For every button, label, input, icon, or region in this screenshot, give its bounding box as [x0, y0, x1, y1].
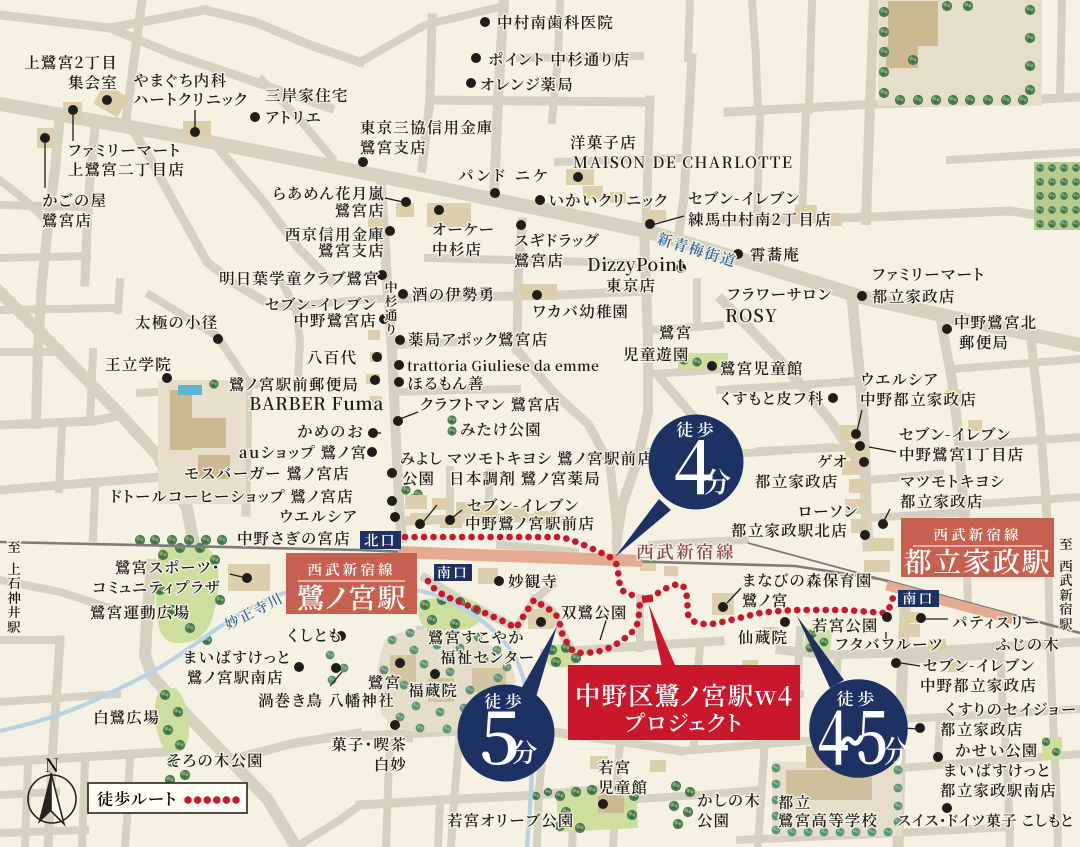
svg-text:鷺宮児童館: 鷺宮児童館: [720, 357, 804, 379]
svg-text:スギドラッグ: スギドラッグ: [514, 229, 599, 251]
svg-text:マツモトキヨシ: マツモトキヨシ: [900, 470, 1005, 492]
svg-text:鷺宮高等学校: 鷺宮高等学校: [778, 809, 878, 831]
svg-text:まなびの森保育園: まなびの森保育園: [742, 569, 873, 591]
svg-text:アトリエ: アトリエ: [265, 106, 322, 128]
svg-text:くすりのセイジョー: くすりのセイジョー: [945, 698, 1077, 720]
svg-text:フタバフルーツ: フタバフルーツ: [835, 633, 944, 655]
svg-text:都立家政駅南店: 都立家政駅南店: [940, 779, 1057, 801]
svg-text:南口: 南口: [437, 563, 469, 583]
svg-text:中野鷺ノ宮駅前店: 中野鷺ノ宮駅前店: [465, 512, 595, 534]
svg-text:至上石神井駅: 至上石神井駅: [6, 536, 21, 636]
svg-text:ウエルシア: ウエルシア: [279, 505, 357, 527]
svg-text:ポイント 中杉通り店: ポイント 中杉通り店: [488, 48, 630, 70]
svg-text:霄蕎庵: 霄蕎庵: [750, 243, 800, 265]
svg-text:公園: 公園: [402, 467, 435, 489]
svg-text:鷺宮店: 鷺宮店: [335, 199, 385, 221]
svg-text:都立家政店: 都立家政店: [755, 470, 839, 492]
svg-text:都立家政駅: 都立家政駅: [904, 541, 1052, 581]
svg-text:かめのお: かめのお: [297, 420, 364, 442]
svg-text:鷺宮すこやか: 鷺宮すこやか: [428, 626, 524, 648]
svg-text:ゲオ: ゲオ: [817, 450, 848, 472]
svg-text:都立家政駅北店: 都立家政駅北店: [731, 519, 848, 541]
svg-text:至西武新宿駅: 至西武新宿駅: [1058, 533, 1073, 633]
svg-text:北口: 北口: [364, 530, 397, 551]
svg-text:ワカバ幼稚園: ワカバ幼稚園: [532, 300, 629, 322]
svg-text:若宮オリーブ公園: 若宮オリーブ公園: [447, 809, 575, 831]
svg-text:MAISON DE CHARLOTTE: MAISON DE CHARLOTTE: [573, 151, 793, 173]
svg-text:都立家政店: 都立家政店: [872, 285, 956, 307]
svg-text:中杉通り: 中杉通り: [384, 277, 397, 338]
svg-text:鷺宮店: 鷺宮店: [42, 209, 92, 231]
svg-text:都立家政店: 都立家政店: [940, 718, 1024, 740]
svg-text:上鷺宮2丁目: 上鷺宮2丁目: [24, 51, 118, 73]
svg-text:酒の伊勢勇: 酒の伊勢勇: [412, 283, 495, 305]
svg-text:中野鷺宮1丁目店: 中野鷺宮1丁目店: [899, 443, 1024, 465]
svg-text:西武新宿線: 西武新宿線: [636, 539, 736, 564]
svg-text:鷺宮: 鷺宮: [368, 671, 401, 693]
svg-text:みよし: みよし: [400, 448, 443, 469]
svg-text:南口: 南口: [903, 589, 935, 609]
svg-text:公園: 公園: [697, 809, 730, 831]
svg-text:鷺ノ宮: 鷺ノ宮: [742, 589, 789, 611]
svg-text:中野都立家政店: 中野都立家政店: [860, 388, 977, 410]
svg-text:日本調剤 鷺ノ宮薬局: 日本調剤 鷺ノ宮薬局: [449, 467, 601, 489]
svg-text:三岸家住宅: 三岸家住宅: [265, 84, 349, 106]
svg-text:くすもと皮フ科: くすもと皮フ科: [720, 387, 824, 409]
svg-text:かせい公園: かせい公園: [955, 739, 1039, 761]
svg-text:練馬中村南2丁目店: 練馬中村南2丁目店: [688, 208, 832, 230]
svg-text:集会室: 集会室: [68, 71, 118, 93]
svg-text:セブン-イレブン: セブン-イレブン: [899, 423, 1011, 445]
svg-text:鷺宮支店: 鷺宮支店: [318, 239, 385, 261]
svg-text:ほるもん善: ほるもん善: [407, 372, 485, 394]
svg-text:プロジェクト: プロジェクト: [624, 707, 743, 738]
svg-text:中野さぎの宮店: 中野さぎの宮店: [237, 527, 351, 549]
svg-text:鷺ノ宮駅: 鷺ノ宮駅: [297, 577, 407, 617]
svg-text:セブン-イレブン: セブン-イレブン: [688, 187, 800, 209]
svg-text:まいばすけっと: まいばすけっと: [183, 646, 291, 668]
svg-text:東京店: 東京店: [606, 274, 656, 296]
svg-text:鷺宮スポーツ・: 鷺宮スポーツ・: [115, 556, 221, 578]
svg-text:フラワーサロン: フラワーサロン: [727, 283, 832, 305]
svg-text:そろの木公園: そろの木公園: [167, 749, 264, 771]
svg-text:福祉センター: 福祉センター: [440, 646, 535, 668]
svg-text:セブン-イレブン: セブン-イレブン: [923, 654, 1035, 676]
svg-text:中杉店: 中杉店: [432, 238, 482, 260]
svg-text:くしとも: くしとも: [287, 624, 342, 646]
svg-text:分: 分: [703, 461, 731, 501]
svg-text:上鷺宮二丁目店: 上鷺宮二丁目店: [68, 158, 185, 180]
svg-text:ROSY: ROSY: [725, 303, 778, 328]
svg-text:オーケー: オーケー: [432, 218, 495, 240]
svg-text:明日葉学童クラブ鷺宮: 明日葉学童クラブ鷺宮: [219, 267, 380, 289]
svg-text:モスバーガー 鷺ノ宮店: モスバーガー 鷺ノ宮店: [184, 462, 350, 484]
svg-text:白鷺広場: 白鷺広場: [93, 706, 160, 728]
svg-text:中野都立家政店: 中野都立家政店: [920, 674, 1037, 696]
svg-text:鷺ノ宮駅南店: 鷺ノ宮駅南店: [187, 666, 284, 688]
svg-text:ウエルシア: ウエルシア: [860, 368, 938, 390]
svg-text:都立家政店: 都立家政店: [900, 490, 984, 512]
svg-text:妙観寺: 妙観寺: [508, 570, 558, 592]
svg-text:オレンジ薬局: オレンジ薬局: [480, 73, 574, 95]
svg-text:白妙: 白妙: [374, 753, 407, 775]
svg-text:菓子・喫茶: 菓子・喫茶: [331, 733, 407, 755]
svg-text:クラフトマン 鷺宮店: クラフトマン 鷺宮店: [420, 393, 561, 415]
svg-text:徒歩ルート: 徒歩ルート: [97, 786, 177, 810]
svg-text:パンド ニケ: パンド ニケ: [458, 164, 550, 186]
svg-text:中野鷺宮店: 中野鷺宮店: [293, 309, 377, 331]
svg-text:ハートクリニック: ハートクリニック: [133, 88, 248, 110]
svg-text:郵便局: 郵便局: [959, 331, 1009, 353]
svg-text:鷺宮店: 鷺宮店: [514, 249, 564, 271]
svg-text:児童遊園: 児童遊園: [623, 343, 690, 365]
svg-text:王立学院: 王立学院: [105, 353, 172, 375]
svg-text:auショップ 鷺ノ宮: auショップ 鷺ノ宮: [239, 441, 367, 463]
svg-text:かしの木: かしの木: [697, 789, 761, 811]
svg-text:分: 分: [883, 727, 907, 772]
svg-text:八百代: 八百代: [307, 346, 357, 368]
svg-text:コミュニティプラザ: コミュニティプラザ: [92, 576, 221, 598]
svg-text:洋菓子店: 洋菓子店: [570, 131, 637, 153]
svg-text:中野鷺宮北: 中野鷺宮北: [954, 311, 1038, 333]
svg-text:みたけ公園: みたけ公園: [460, 418, 542, 440]
svg-text:まいばすけっと: まいばすけっと: [943, 759, 1051, 781]
svg-text:ふじの木: ふじの木: [995, 633, 1060, 655]
svg-text:鷺宮運動広場: 鷺宮運動広場: [90, 601, 190, 623]
svg-text:ファミリーマート: ファミリーマート: [872, 263, 985, 285]
svg-text:中村南歯科医院: 中村南歯科医院: [497, 11, 614, 33]
svg-text:仙蔵院: 仙蔵院: [738, 626, 788, 648]
svg-text:4: 4: [817, 683, 849, 784]
svg-text:ドトールコーヒーショップ 鷺ノ宮店: ドトールコーヒーショップ 鷺ノ宮店: [110, 485, 354, 507]
svg-text:いかいクリニック: いかいクリニック: [548, 189, 668, 211]
svg-text:スイス・ドイツ菓子 こしもと: スイス・ドイツ菓子 こしもと: [897, 810, 1074, 831]
svg-text:BARBER Fuma: BARBER Fuma: [249, 391, 384, 416]
svg-text:薬局アポック鷺宮店: 薬局アポック鷺宮店: [408, 328, 548, 350]
svg-text:東京三協信用金庫: 東京三協信用金庫: [360, 116, 494, 138]
svg-text:太極の小径: 太極の小径: [135, 311, 218, 333]
svg-text:鷺宮: 鷺宮: [659, 321, 692, 343]
svg-text:児童館: 児童館: [598, 776, 648, 798]
svg-text:マツモトキヨシ 鷺ノ宮駅前店: マツモトキヨシ 鷺ノ宮駅前店: [447, 447, 654, 469]
svg-text:若宮: 若宮: [598, 756, 631, 778]
svg-text:パティスリー: パティスリー: [952, 611, 1041, 633]
svg-text:双鷺公園: 双鷺公園: [561, 601, 628, 623]
svg-text:かごの屋: かごの屋: [42, 189, 107, 211]
svg-text:鷺宮支店: 鷺宮支店: [360, 136, 427, 158]
svg-text:福蔵院: 福蔵院: [408, 679, 458, 701]
svg-text:分: 分: [511, 731, 538, 770]
